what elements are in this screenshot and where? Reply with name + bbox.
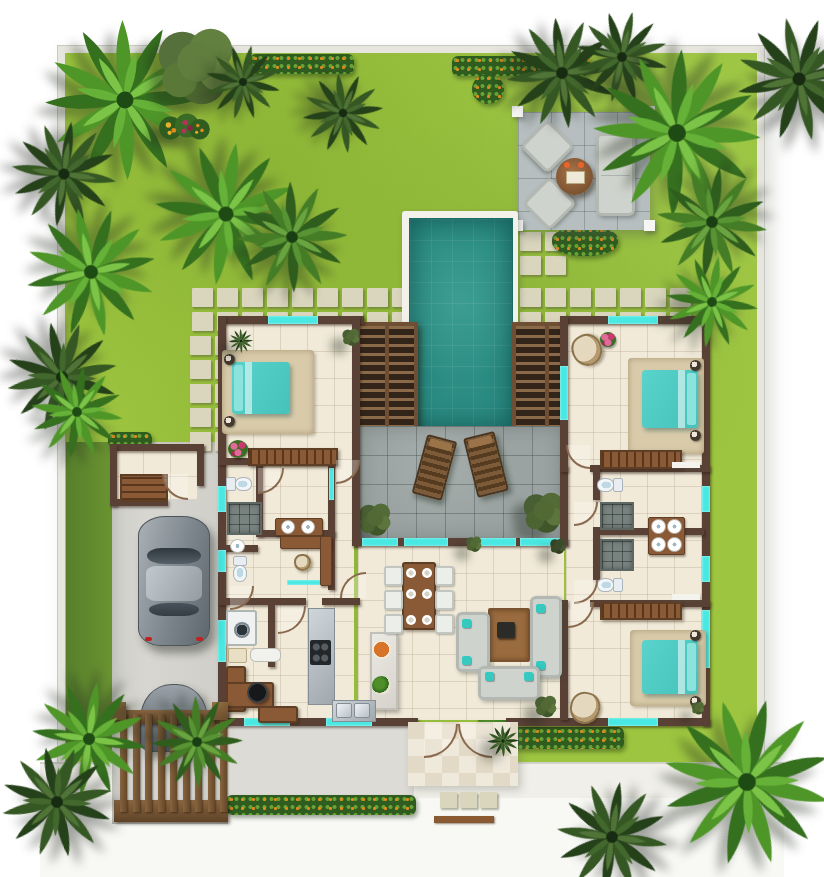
car-windshield: [147, 548, 200, 565]
window-right-bath1: [702, 486, 710, 512]
window-terrace-door-1: [362, 538, 398, 546]
kitchen-shelf: [258, 706, 298, 723]
closet-stool: [294, 554, 311, 571]
window-left-wc: [218, 550, 226, 572]
hedge-front-left: [226, 795, 416, 815]
window-closet-mirror: [287, 580, 321, 585]
car-parked: [138, 516, 210, 646]
dining-chair: [435, 566, 454, 586]
car-taillight: [196, 637, 203, 641]
window-hall-partition: [329, 468, 334, 500]
bedroom1-wardrobe: [248, 448, 338, 466]
stepping-stone: [440, 792, 457, 808]
bed-pillow: [687, 643, 696, 691]
window-bedroom2-poolside: [560, 366, 568, 420]
bedroom1-flowers: [228, 440, 248, 458]
lounge-headrest: [428, 438, 452, 452]
car-roof: [146, 566, 202, 602]
dinner-plate: [422, 568, 432, 578]
patio-tray: [566, 171, 585, 184]
bush-below-patio: [552, 226, 618, 256]
toilet: [226, 476, 252, 492]
sink-basin: [301, 520, 315, 534]
bedroom1-plant: [228, 328, 254, 354]
window-terrace-door-2: [404, 538, 448, 546]
car-taillight: [145, 637, 152, 641]
dining-chair: [435, 614, 454, 634]
window-left-laundry: [218, 620, 226, 662]
living-sofa-left: [456, 612, 490, 672]
dining-table: [402, 562, 436, 630]
paver-stone: [520, 232, 541, 251]
paver-stone: [367, 288, 388, 307]
window-bedroom1-north: [268, 316, 318, 324]
sofa-pillow: [524, 672, 533, 681]
bedroom2-bed: [642, 370, 698, 428]
kitchen-cooktop: [310, 640, 331, 665]
bed-pillow: [234, 365, 243, 411]
sink-basin: [651, 519, 666, 534]
bed-sheet-fold: [245, 362, 252, 414]
dinner-plate: [406, 615, 416, 625]
shower-right-1: [600, 502, 634, 530]
swimming-pool: [409, 218, 513, 428]
paver-stone: [317, 288, 338, 307]
bedroom1-plant: [340, 326, 362, 348]
nightstand-lamp: [690, 430, 701, 441]
toilet: [597, 577, 623, 593]
walkin-closet-counter-side: [320, 536, 332, 586]
washing-machine: [226, 610, 257, 646]
sink-basin: [667, 519, 682, 534]
sofa-pillow: [485, 672, 494, 681]
paver-stone: [620, 288, 641, 307]
paver-stone: [545, 256, 566, 275]
dinner-plate: [406, 589, 416, 599]
toilet: [232, 556, 248, 582]
living-coffee-table: [497, 622, 515, 638]
shower-right-2: [600, 539, 634, 571]
salad-bowl: [372, 676, 391, 695]
bed-sheet-fold: [678, 640, 685, 694]
wall-storage-left: [110, 444, 117, 506]
toilet: [597, 477, 623, 493]
bedroom2-flowers: [600, 332, 616, 347]
lounge-headrest: [468, 435, 493, 449]
car-rear-window: [149, 603, 199, 616]
paver-stone: [570, 288, 591, 307]
living-plant: [532, 692, 560, 720]
paver-stone: [342, 288, 363, 307]
stepping-stone: [460, 792, 477, 808]
window-bedroom2-north: [608, 316, 658, 324]
dining-chair: [384, 590, 403, 610]
sink-basin: [667, 537, 682, 552]
sink-basin: [651, 537, 666, 552]
dining-chair: [435, 590, 454, 610]
ironing-board: [250, 648, 281, 662]
paver-stone: [190, 408, 211, 427]
paver-stone: [192, 312, 213, 331]
patio-drink: [564, 162, 570, 168]
stepping-stone: [480, 792, 497, 808]
hedge-front-right: [510, 727, 624, 749]
sink-bowl: [336, 703, 352, 718]
bedroom3-wardrobe: [600, 602, 682, 620]
nightstand-lamp: [224, 416, 235, 427]
palm-tree: [655, 245, 769, 359]
window-right-bath2: [702, 556, 710, 582]
nightstand-lamp: [224, 354, 235, 365]
wall-storage-right: [197, 444, 204, 486]
dinner-plate: [422, 615, 432, 625]
terrace-plant: [354, 498, 396, 540]
dinner-plate: [406, 568, 416, 578]
bedroom2-shelf: [672, 462, 700, 468]
wall-mid-left-b: [322, 598, 360, 605]
living-sofa-bottom: [478, 666, 540, 700]
palm-tree: [0, 734, 125, 871]
wc-sink: [230, 539, 245, 553]
nightstand-lamp: [690, 630, 701, 641]
paver-stone: [190, 384, 211, 403]
storage-bench: [120, 474, 168, 502]
paver-stone: [595, 288, 616, 307]
sofa-pillow: [536, 604, 545, 613]
laundry-basket: [228, 648, 247, 663]
wall-pool-west: [352, 316, 360, 546]
dining-chair: [384, 566, 403, 586]
patio-drink: [578, 162, 584, 168]
entrance-threshold: [434, 816, 494, 823]
nightstand-lamp: [690, 360, 701, 371]
bedroom3-shelf: [672, 594, 700, 600]
bedroom3-bed: [642, 640, 698, 694]
hall-plant: [464, 534, 484, 554]
shower-left: [227, 502, 262, 535]
wall-pool-east: [560, 316, 568, 546]
wall-bedroom2-south-a: [560, 465, 568, 472]
paver-stone: [520, 256, 541, 275]
dining-chair: [384, 614, 403, 634]
bedroom2-wardrobe: [600, 450, 682, 469]
wall-bath-right-v2: [593, 527, 600, 580]
porch-agave-plant: [486, 724, 520, 758]
villa-floorplan-canvas: [0, 0, 824, 877]
bedroom1-bed: [232, 362, 290, 414]
paver-stone: [545, 288, 566, 307]
pizza-plate: [372, 640, 391, 659]
dinner-plate: [422, 589, 432, 599]
bed-pillow: [687, 373, 696, 425]
sofa-pillow: [462, 656, 471, 665]
paver-stone: [190, 360, 211, 379]
paver-stone: [190, 336, 211, 355]
paver-stone: [520, 288, 541, 307]
window-left-bath: [218, 486, 226, 512]
sink-basin: [281, 520, 295, 534]
bed-sheet-fold: [678, 370, 685, 428]
hall-plant-east: [548, 536, 568, 556]
sink-bowl: [354, 703, 370, 718]
office-chair: [247, 682, 268, 703]
sofa-pillow: [462, 619, 471, 628]
